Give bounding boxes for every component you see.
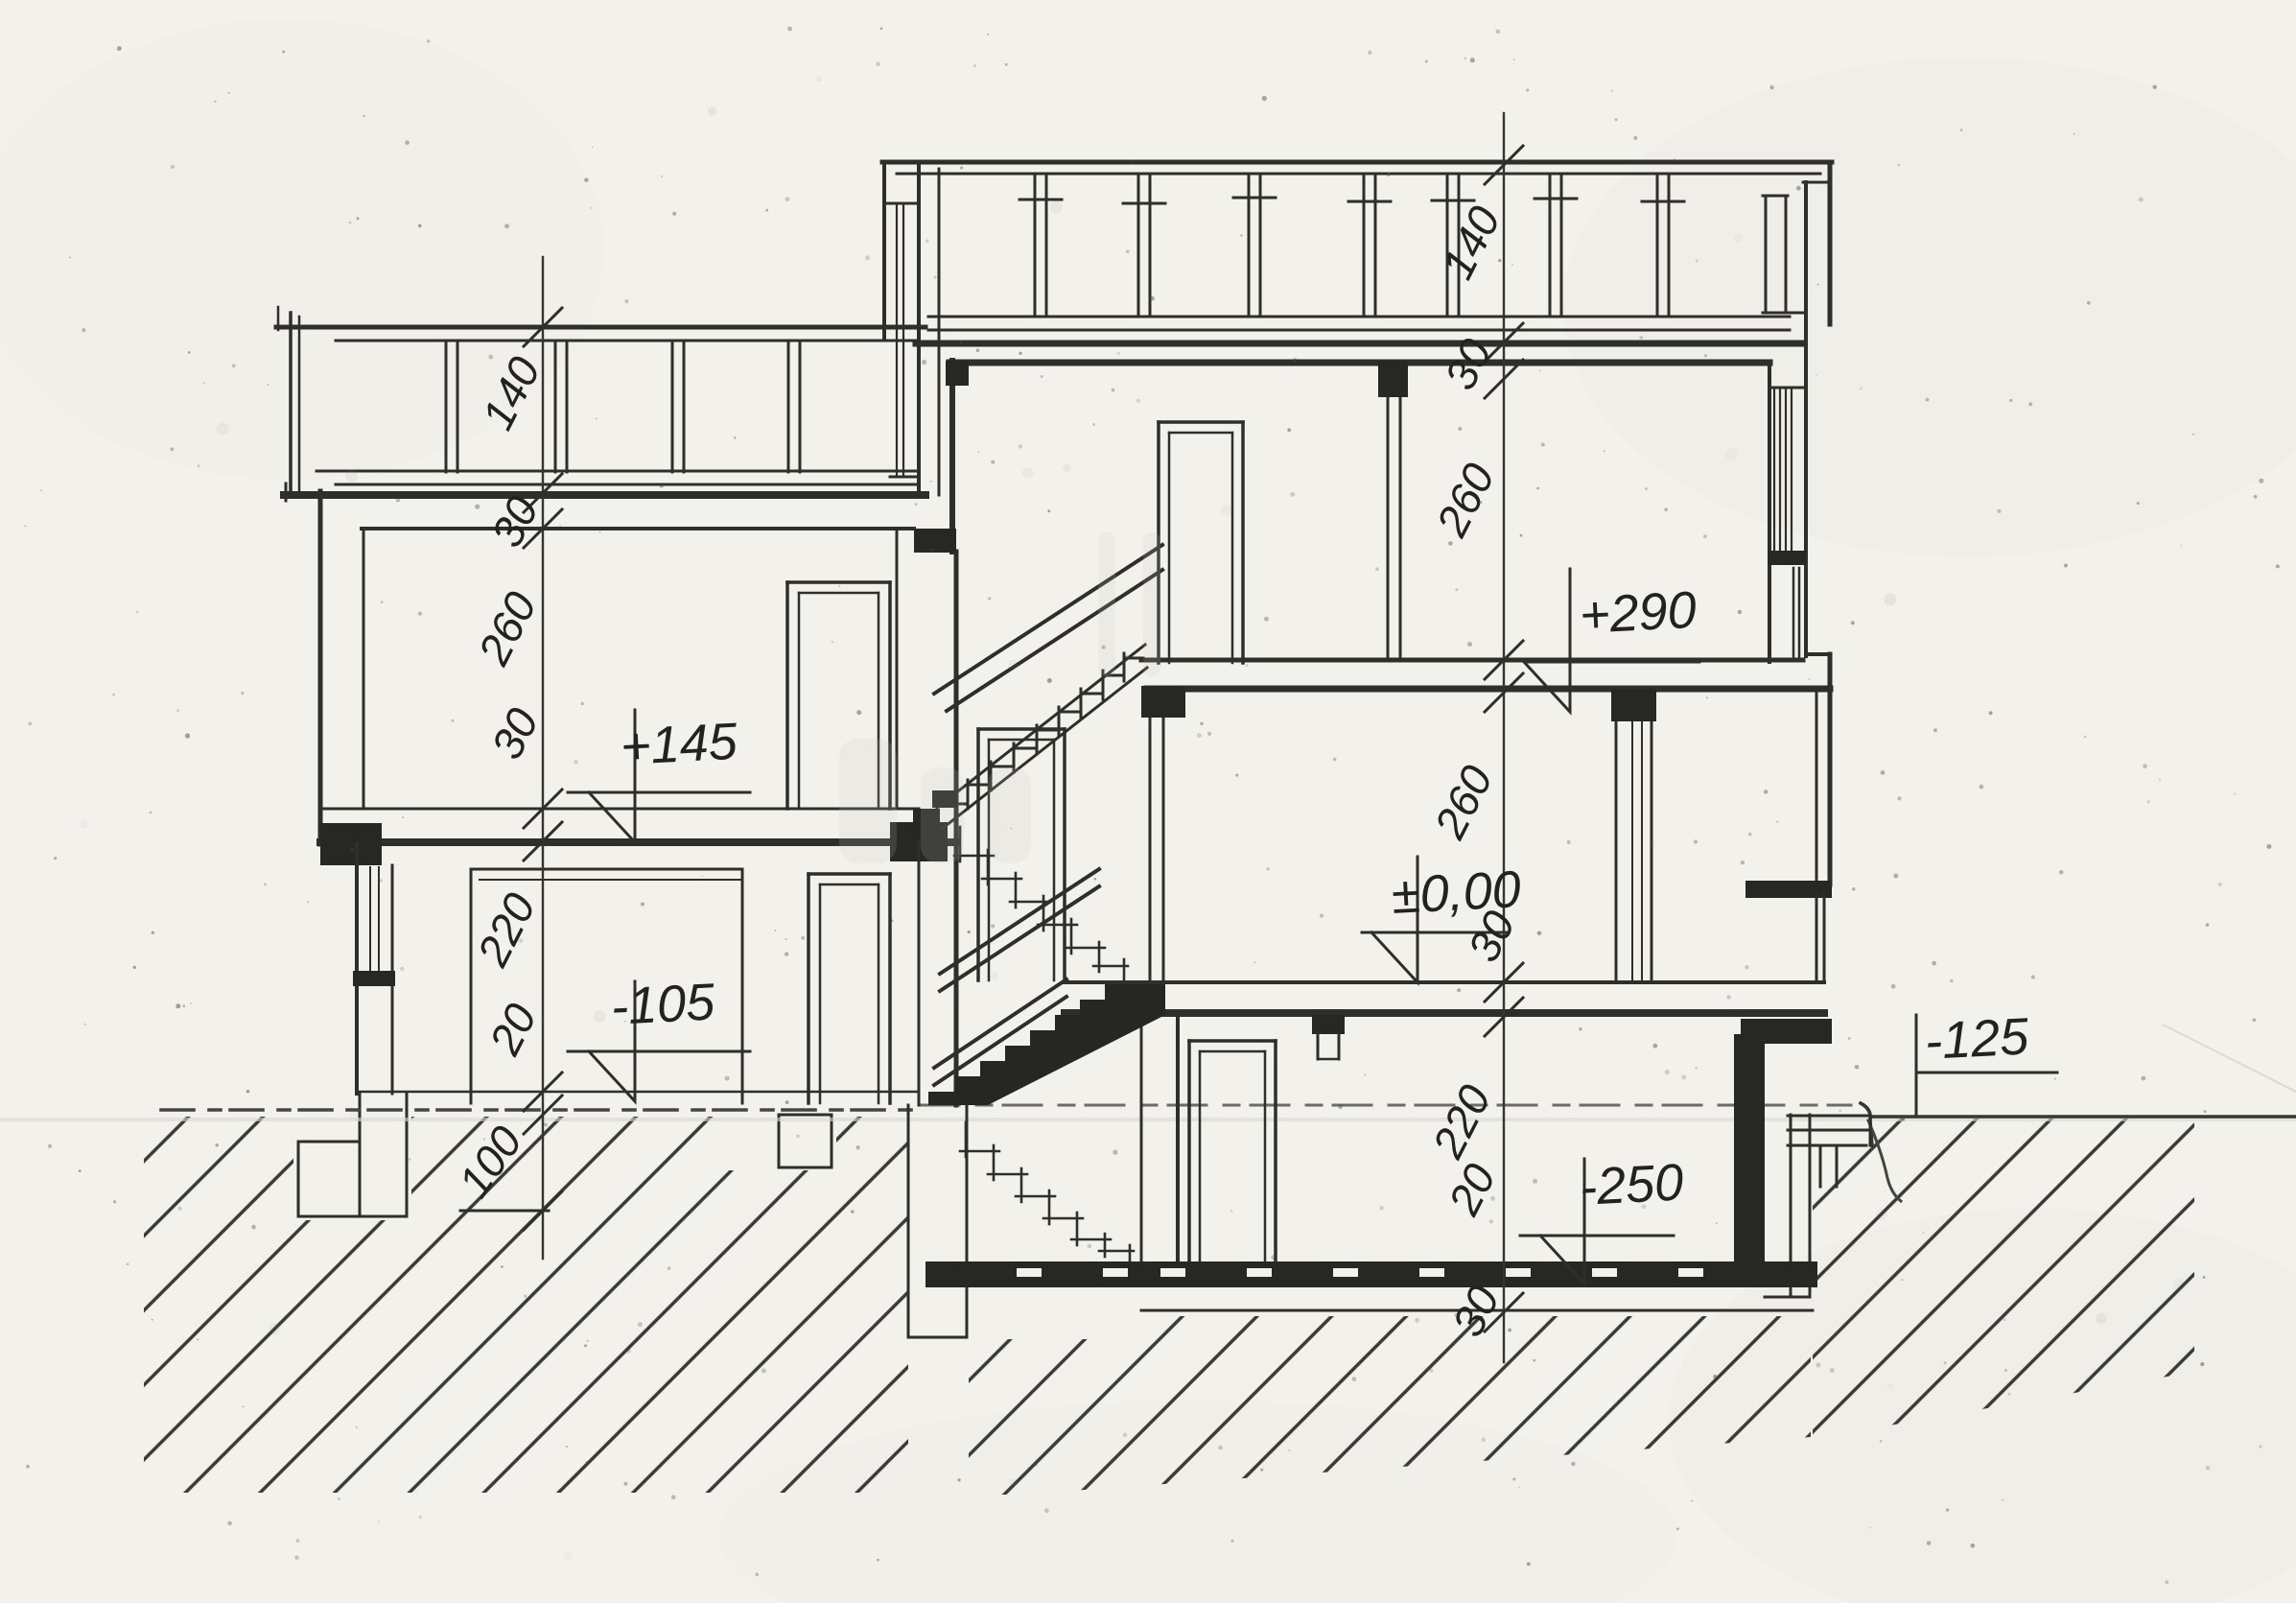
svg-text:+290: +290	[1578, 581, 1698, 645]
svg-text:-250: -250	[1578, 1153, 1684, 1216]
svg-text:-105: -105	[609, 973, 716, 1036]
svg-text:±0,00: ±0,00	[1390, 860, 1522, 925]
svg-text:+145: +145	[619, 713, 739, 776]
svg-text:-125: -125	[1923, 1007, 2030, 1071]
